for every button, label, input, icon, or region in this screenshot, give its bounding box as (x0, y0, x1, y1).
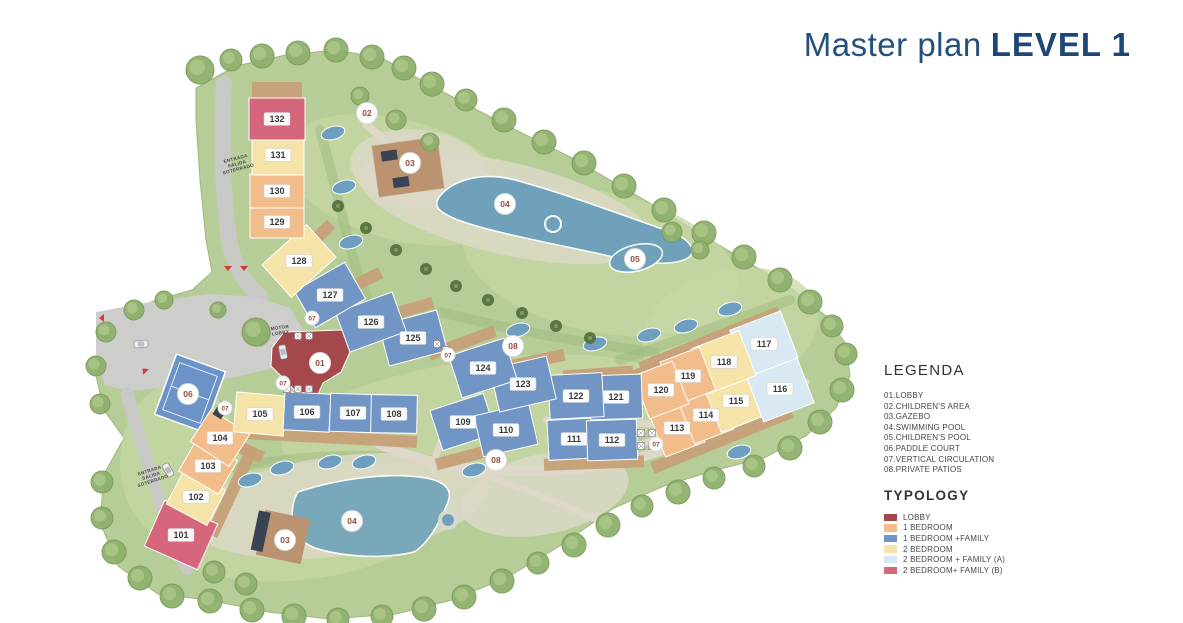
typology-swatch-2bf_a (884, 556, 897, 564)
typology-row-lobby: LOBBY (884, 512, 1005, 523)
typology-row-2bf_b: 2 BEDROOM+ FAMILY (B) (884, 565, 1005, 576)
svg-text:116: 116 (773, 384, 788, 394)
typology-label-1b: 1 BEDROOM (903, 523, 953, 532)
title-prefix: Master plan (804, 26, 982, 63)
svg-text:01: 01 (315, 358, 325, 368)
svg-text:03: 03 (280, 535, 290, 545)
vertical-circulation-box (306, 333, 313, 340)
amenity-marker-08: 08 (503, 336, 524, 357)
typology-swatch-1b (884, 524, 897, 532)
amenity-marker-05: 05 (625, 249, 646, 270)
typology-heading: TYPOLOGY (884, 488, 1005, 503)
amenity-marker-04: 04 (342, 511, 363, 532)
unit-label-116: 116 (767, 383, 793, 396)
svg-text:108: 108 (386, 409, 401, 419)
svg-text:111: 111 (567, 434, 581, 444)
svg-text:103: 103 (200, 461, 215, 471)
unit-label-105: 105 (247, 408, 273, 421)
amenity-marker-06: 06 (178, 384, 199, 405)
unit-label-114: 114 (693, 409, 719, 422)
svg-text:122: 122 (568, 391, 583, 401)
unit-label-122: 122 (563, 390, 589, 403)
svg-text:110: 110 (499, 425, 514, 435)
amenity-marker-02: 02 (357, 103, 378, 124)
svg-text:107: 107 (345, 408, 360, 418)
legend-item-01: 01.LOBBY (884, 391, 994, 402)
vertical-circulation-box (649, 430, 656, 437)
svg-text:113: 113 (670, 423, 685, 433)
legend-item-03: 03.GAZEBO (884, 412, 994, 423)
typology-row-2b: 2 BEDROOM (884, 544, 1005, 555)
typology-swatch-2b (884, 545, 897, 553)
svg-text:109: 109 (455, 417, 470, 427)
car (134, 340, 149, 348)
unit-label-109: 109 (450, 416, 476, 429)
typology-swatch-2bf_b (884, 567, 897, 575)
amenity-marker-04: 04 (495, 194, 516, 215)
unit-label-113: 113 (664, 422, 690, 435)
unit-label-124: 124 (470, 362, 496, 375)
unit-label-125: 125 (400, 332, 426, 345)
unit-label-115: 115 (723, 395, 749, 408)
unit-label-104: 104 (207, 432, 233, 445)
page-title: Master planLEVEL 1 (804, 26, 1131, 64)
unit-label-101: 101 (168, 529, 194, 542)
unit-label-128: 128 (286, 255, 312, 268)
vertical-circulation-box (638, 430, 645, 437)
unit-label-107: 107 (340, 407, 366, 420)
unit-label-117: 117 (751, 338, 777, 351)
unit-label-102: 102 (183, 491, 209, 504)
vertical-circulation-box (306, 386, 313, 393)
svg-text:124: 124 (475, 363, 490, 373)
svg-text:119: 119 (681, 371, 696, 381)
legend-heading: LEGENDA (884, 362, 994, 379)
svg-text:07: 07 (279, 381, 287, 388)
unit-label-120: 120 (648, 384, 674, 397)
unit-label-108: 108 (381, 408, 407, 421)
svg-text:07: 07 (221, 406, 229, 413)
amenity-marker-08: 08 (486, 450, 507, 471)
amenity-marker-03: 03 (400, 153, 421, 174)
legend-item-02: 02.CHILDREN'S AREA (884, 402, 994, 413)
svg-text:131: 131 (270, 150, 285, 160)
svg-text:104: 104 (212, 433, 227, 443)
svg-text:08: 08 (491, 455, 501, 465)
svg-text:106: 106 (299, 407, 314, 417)
master-plan-page: 1011021031041051061071081091101111121131… (0, 0, 1183, 623)
svg-text:03: 03 (405, 158, 415, 168)
svg-text:123: 123 (515, 379, 530, 389)
unit-label-118: 118 (711, 356, 737, 369)
legend-item-06: 06.PADDLE COURT (884, 444, 994, 455)
unit-label-126: 126 (358, 316, 384, 329)
typology-row-1bf: 1 BEDROOM +FAMILY (884, 533, 1005, 544)
amenity-marker-07: 07 (649, 437, 663, 451)
svg-text:04: 04 (500, 199, 510, 209)
unit-label-112: 112 (599, 434, 625, 447)
title-emphasis: LEVEL 1 (991, 26, 1131, 63)
unit-label-131: 131 (265, 149, 291, 162)
legend-item-05: 05.CHILDREN'S POOL (884, 433, 994, 444)
svg-text:128: 128 (291, 256, 306, 266)
svg-text:115: 115 (729, 396, 744, 406)
amenity-marker-03: 03 (275, 530, 296, 551)
unit-label-103: 103 (195, 460, 221, 473)
svg-text:08: 08 (508, 341, 518, 351)
svg-text:129: 129 (269, 217, 284, 227)
amenity-marker-07: 07 (276, 376, 290, 390)
amenity-marker-07: 07 (218, 401, 232, 415)
svg-text:114: 114 (699, 410, 714, 420)
svg-text:05: 05 (630, 254, 640, 264)
unit-label-121: 121 (603, 391, 629, 404)
unit-label-106: 106 (294, 406, 320, 419)
svg-text:07: 07 (652, 442, 660, 449)
typology-panel: TYPOLOGY LOBBY1 BEDROOM1 BEDROOM +FAMILY… (884, 488, 1005, 576)
unit-label-129: 129 (264, 216, 290, 229)
legend-panel: LEGENDA 01.LOBBY02.CHILDREN'S AREA03.GAZ… (884, 362, 994, 476)
typology-row-1b: 1 BEDROOM (884, 523, 1005, 534)
unit-label-123: 123 (510, 378, 536, 391)
typology-items: LOBBY1 BEDROOM1 BEDROOM +FAMILY2 BEDROOM… (884, 512, 1005, 576)
svg-text:04: 04 (347, 516, 357, 526)
amenity-marker-07: 07 (441, 348, 455, 362)
svg-text:101: 101 (173, 530, 188, 540)
vertical-circulation-box (638, 443, 645, 450)
svg-text:02: 02 (362, 108, 372, 118)
legend-items: 01.LOBBY02.CHILDREN'S AREA03.GAZEBO04.SW… (884, 391, 994, 476)
legend-item-04: 04.SWIMMING POOL (884, 423, 994, 434)
unit-label-130: 130 (264, 185, 290, 198)
typology-label-2b: 2 BEDROOM (903, 545, 953, 554)
unit-label-132: 132 (264, 113, 290, 126)
unit-label-119: 119 (675, 370, 701, 383)
svg-text:125: 125 (405, 333, 420, 343)
typology-label-2bf_b: 2 BEDROOM+ FAMILY (B) (903, 566, 1003, 575)
typology-swatch-lobby (884, 514, 897, 522)
legend-item-08: 08.PRIVATE PATIOS (884, 465, 994, 476)
svg-text:126: 126 (363, 317, 378, 327)
svg-text:127: 127 (322, 290, 337, 300)
svg-text:102: 102 (188, 492, 203, 502)
svg-text:105: 105 (252, 409, 267, 419)
site-plan-drawing: 1011021031041051061071081091101111121131… (0, 0, 1183, 623)
svg-text:07: 07 (444, 353, 452, 360)
svg-text:118: 118 (717, 357, 732, 367)
svg-text:120: 120 (653, 385, 668, 395)
amenity-marker-07: 07 (305, 311, 319, 325)
typology-label-1bf: 1 BEDROOM +FAMILY (903, 534, 989, 543)
svg-text:121: 121 (608, 392, 623, 402)
typology-swatch-1bf (884, 535, 897, 543)
svg-text:07: 07 (308, 316, 316, 323)
typology-label-2bf_a: 2 BEDROOM + FAMILY (A) (903, 555, 1005, 564)
svg-text:112: 112 (605, 435, 620, 445)
svg-text:117: 117 (757, 339, 772, 349)
typology-label-lobby: LOBBY (903, 513, 931, 522)
vertical-circulation-box (295, 333, 302, 340)
unit-label-127: 127 (317, 289, 343, 302)
amenity-marker-01: 01 (310, 353, 331, 374)
vertical-circulation-box (295, 386, 302, 393)
unit-label-110: 110 (493, 424, 519, 437)
legend-item-07: 07.VERTICAL CIRCULATION (884, 455, 994, 466)
unit-label-111: 111 (561, 433, 587, 446)
svg-text:132: 132 (269, 114, 284, 124)
typology-row-2bf_a: 2 BEDROOM + FAMILY (A) (884, 554, 1005, 565)
vertical-circulation-box (434, 341, 441, 348)
svg-text:130: 130 (269, 186, 284, 196)
svg-text:06: 06 (183, 389, 193, 399)
